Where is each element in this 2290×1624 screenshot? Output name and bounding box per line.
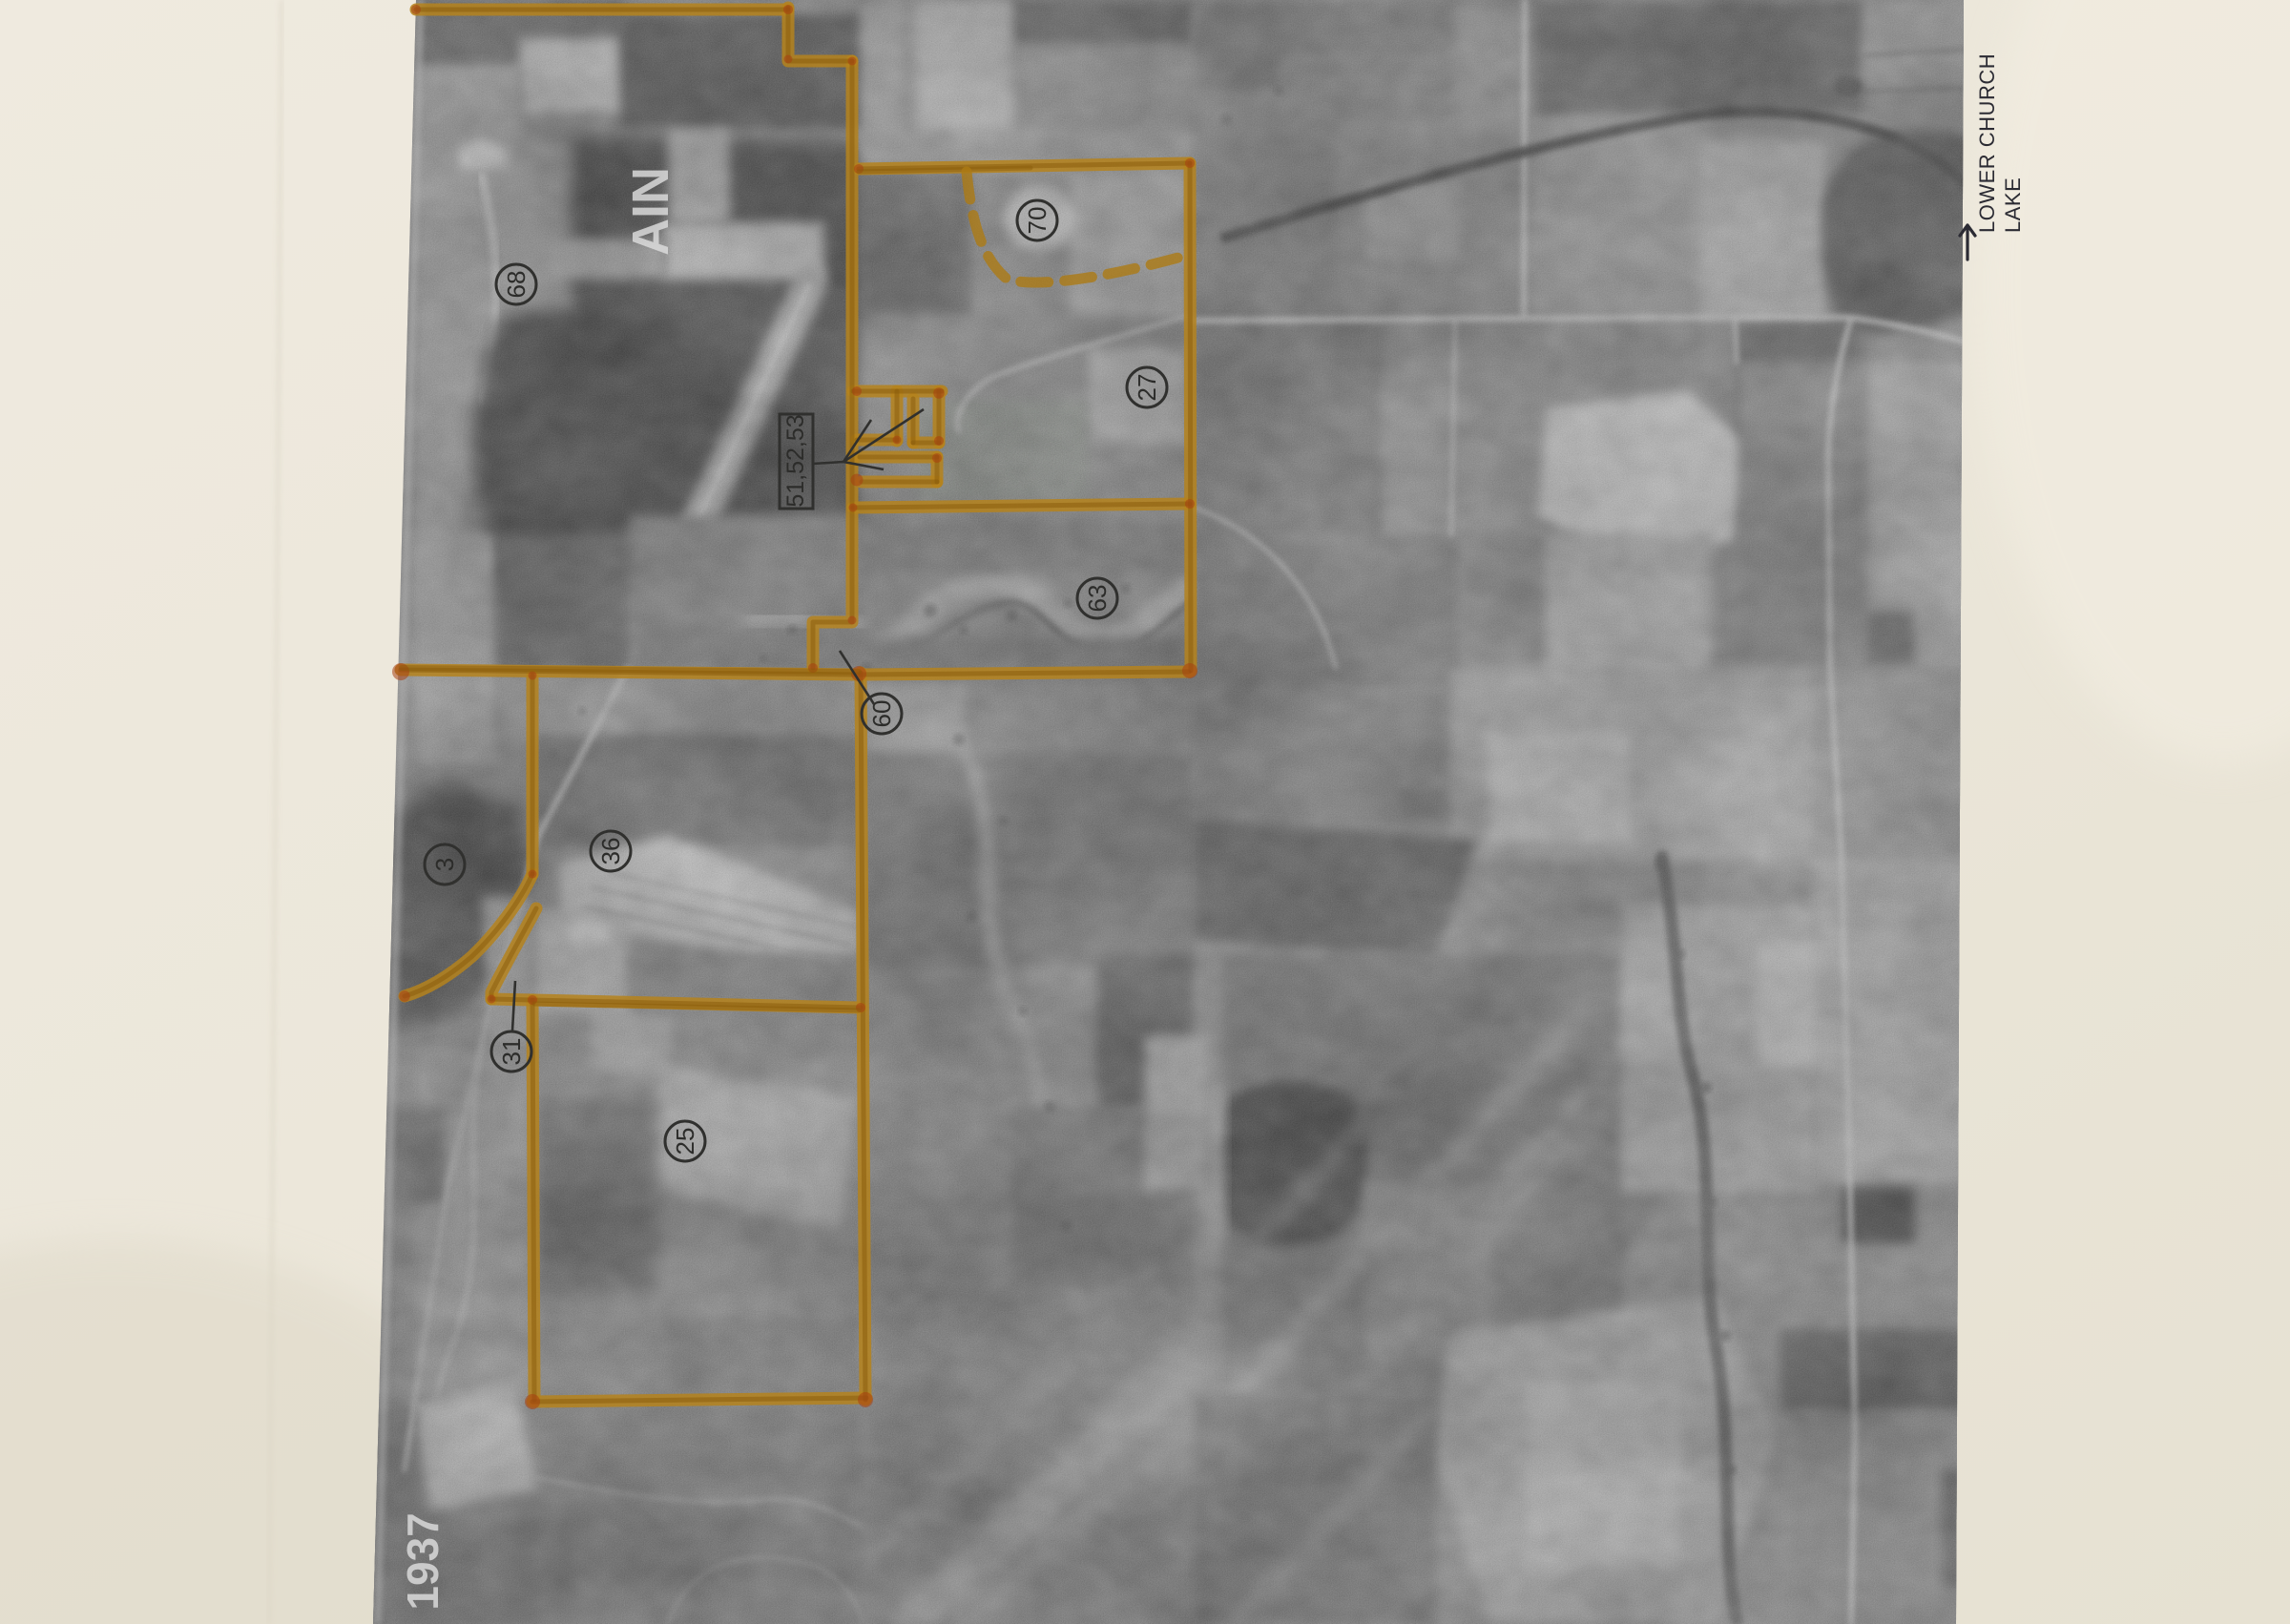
svg-text:31: 31 <box>497 1038 526 1066</box>
svg-text:63: 63 <box>1083 585 1112 613</box>
svg-text:3: 3 <box>430 858 459 871</box>
svg-text:27: 27 <box>1133 374 1161 402</box>
svg-text:25: 25 <box>671 1128 699 1156</box>
svg-text:36: 36 <box>596 838 625 865</box>
svg-text:LAKE: LAKE <box>2001 177 2025 233</box>
svg-text:LOWER CHURCH: LOWER CHURCH <box>1975 53 1999 233</box>
svg-text:70: 70 <box>1023 207 1051 235</box>
svg-text:51,52,53: 51,52,53 <box>782 414 809 507</box>
svg-text:AIN: AIN <box>622 167 679 256</box>
svg-text:68: 68 <box>502 271 531 299</box>
svg-text:2 1937: 2 1937 <box>398 1512 448 1624</box>
svg-text:60: 60 <box>867 700 896 728</box>
